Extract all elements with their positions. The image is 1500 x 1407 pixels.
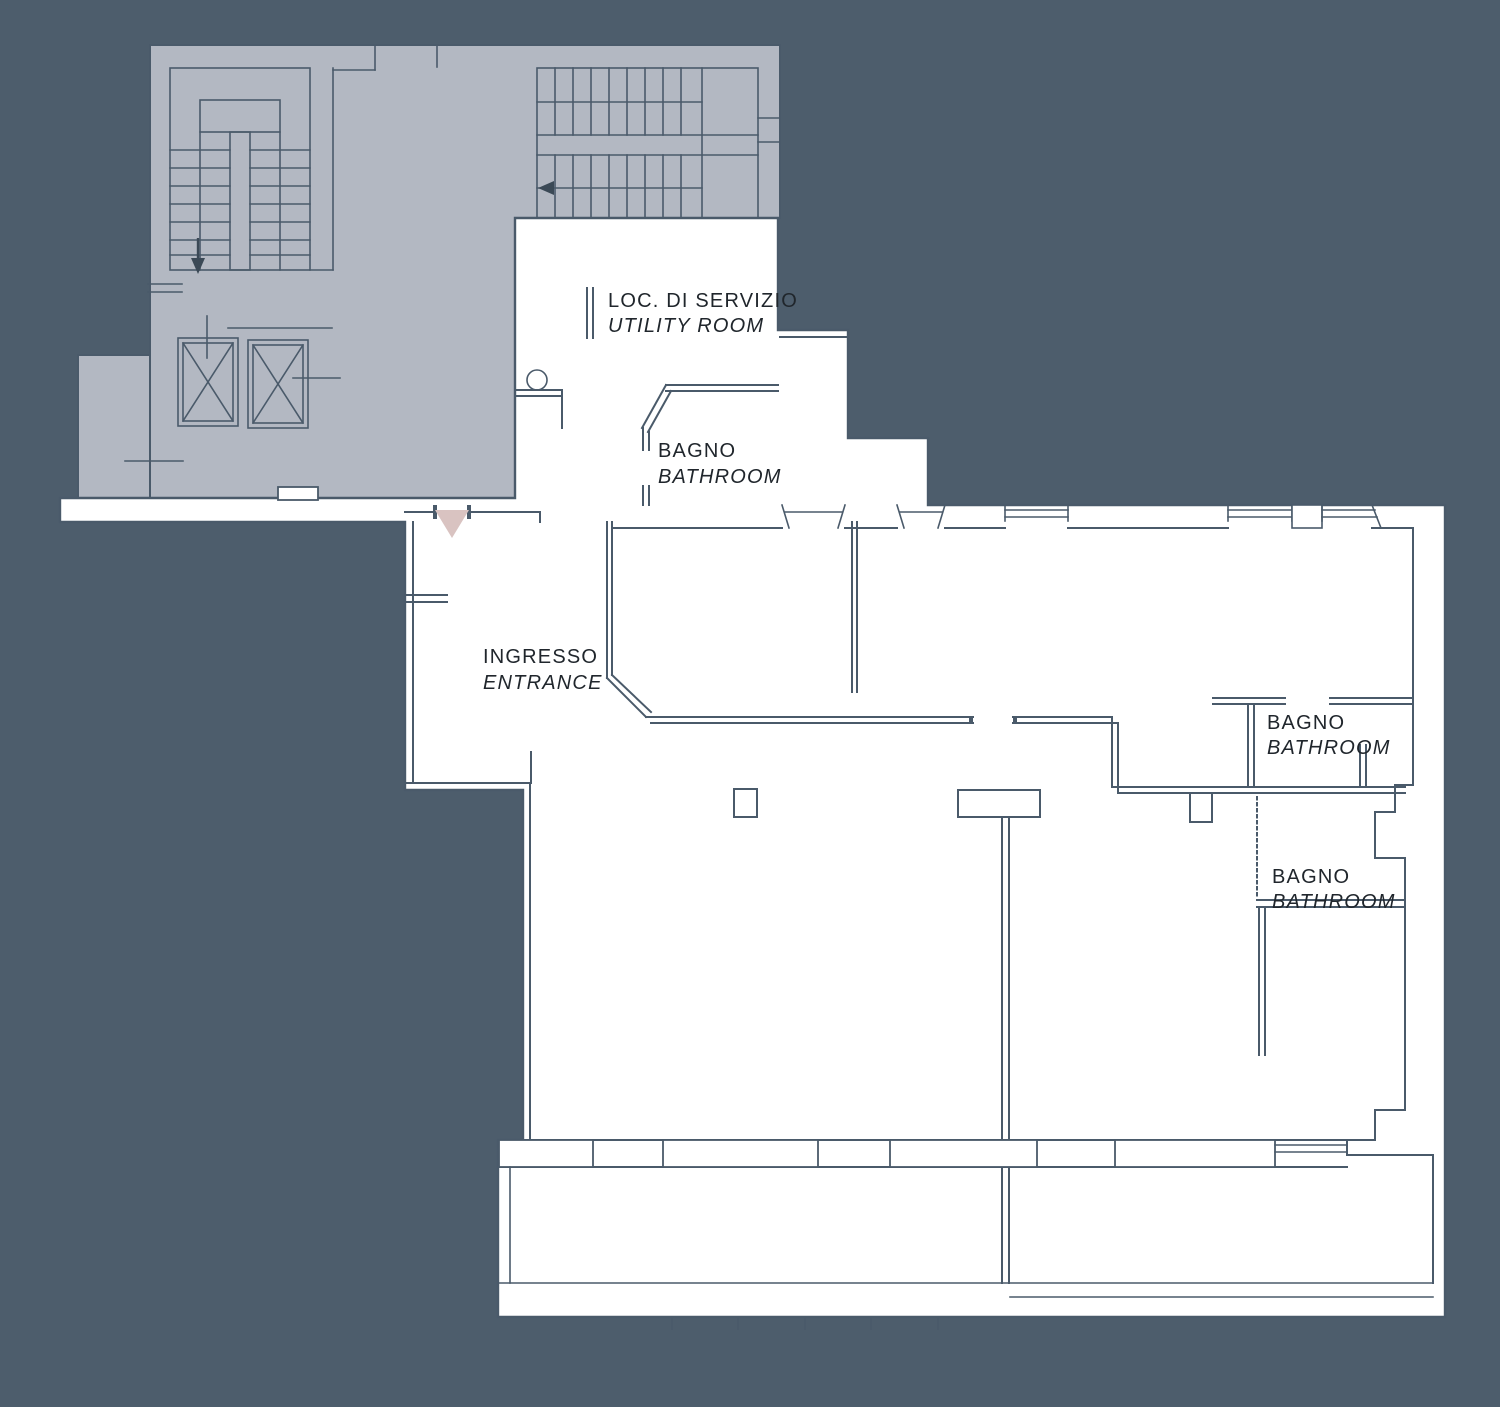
- wall-niche: [1292, 505, 1322, 528]
- window: [499, 1140, 593, 1167]
- label-bathroom-top-en: BATHROOM: [658, 466, 782, 488]
- label-bathroom-right-lower-en: BATHROOM: [1272, 891, 1396, 913]
- label-utility-it: LOC. DI SERVIZIO: [608, 290, 798, 312]
- label-bathroom-right-lower-it: BAGNO: [1272, 866, 1350, 888]
- label-utility-en: UTILITY ROOM: [608, 315, 764, 337]
- label-bathroom-right-upper-it: BAGNO: [1267, 712, 1345, 734]
- window: [1115, 1140, 1275, 1167]
- label-entrance-it: INGRESSO: [483, 646, 598, 668]
- floor-plan: LOC. DI SERVIZIO UTILITY ROOM BAGNO BATH…: [0, 0, 1500, 1407]
- floor-plan-canvas: LOC. DI SERVIZIO UTILITY ROOM BAGNO BATH…: [0, 0, 1500, 1407]
- common-area-annex: [78, 355, 150, 500]
- landing-notch: [278, 487, 318, 500]
- label-entrance-en: ENTRANCE: [483, 672, 603, 694]
- label-bathroom-top-it: BAGNO: [658, 440, 736, 462]
- window: [890, 1140, 1037, 1167]
- window: [663, 1140, 818, 1167]
- label-bathroom-right-upper-en: BATHROOM: [1267, 737, 1391, 759]
